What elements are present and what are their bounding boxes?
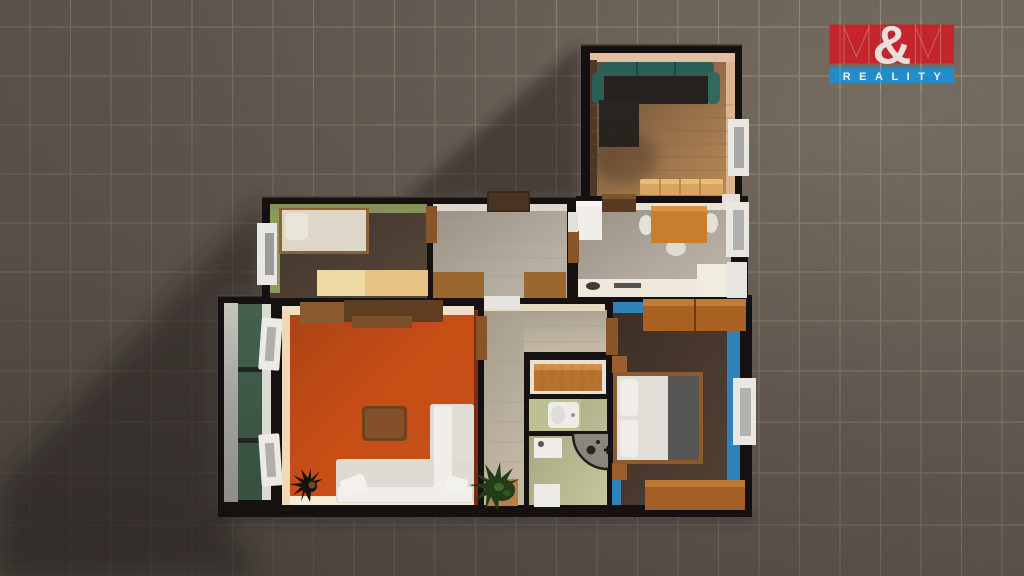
svg-text:&: & xyxy=(873,16,912,76)
svg-text:REALITY: REALITY xyxy=(843,71,950,83)
